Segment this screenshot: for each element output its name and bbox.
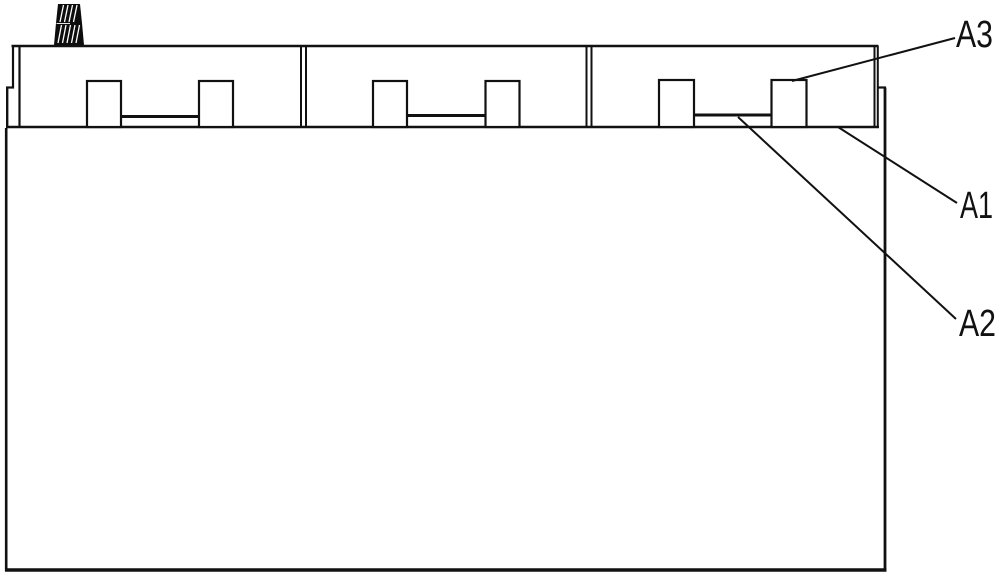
svg-text:A3: A3 — [956, 14, 993, 56]
svg-text:A2: A2 — [959, 303, 996, 345]
svg-text:A1: A1 — [960, 185, 993, 227]
